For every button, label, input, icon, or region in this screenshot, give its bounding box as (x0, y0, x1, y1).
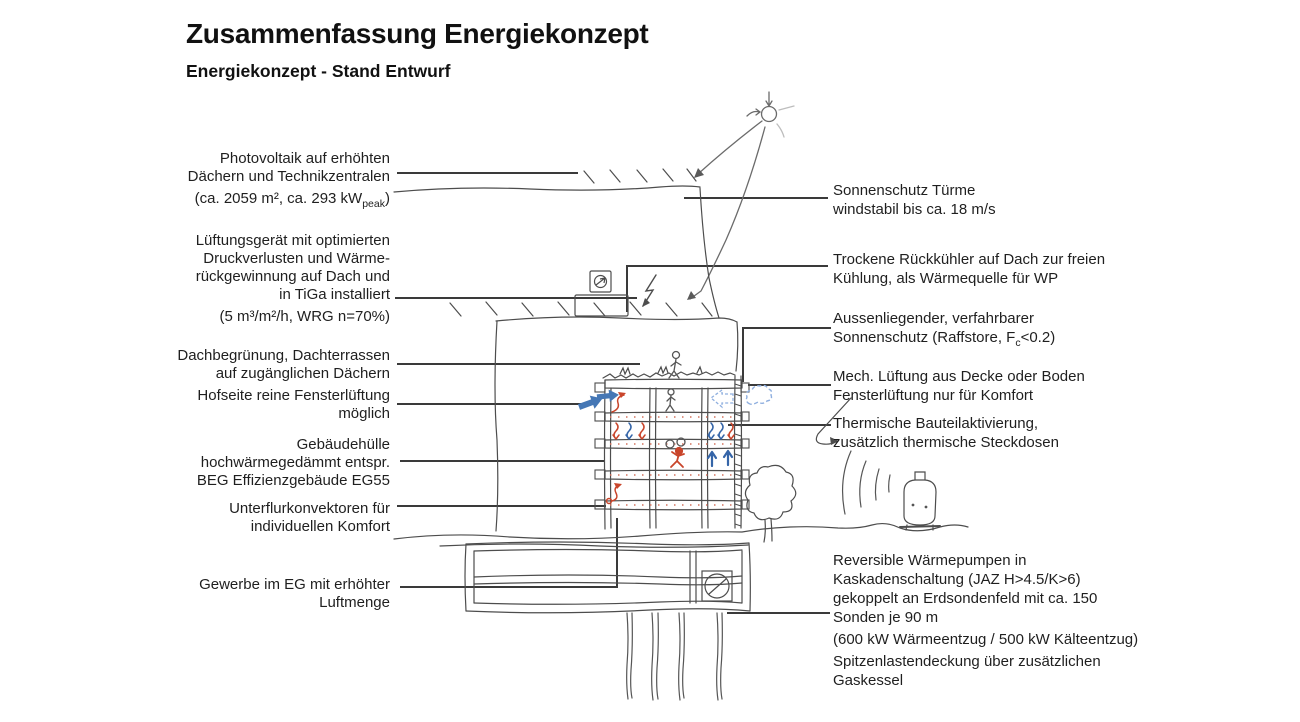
label-bauteilaktivierung: Thermische Bauteilaktivierung, zusätzlic… (833, 414, 1059, 452)
label-line: hochwärmegedämmt entspr. (197, 454, 390, 472)
lightning-icon (642, 275, 656, 307)
label-sonnenschutz-tuerme: Sonnenschutz Türme windstabil bis ca. 18… (833, 181, 996, 219)
label-line: (ca. 2059 m², ca. 293 kWpeak) (188, 190, 390, 213)
label-line: Fensterlüftung nur für Komfort (833, 386, 1085, 405)
grass-tufts (620, 367, 702, 374)
wind-cloud-icon (746, 385, 771, 404)
label-line: (5 m³/m²/h, WRG n=70%) (196, 308, 390, 326)
label-line: Gaskessel (833, 671, 1138, 690)
label-line: rückgewinnung auf Dach und (196, 268, 390, 286)
label-line: Hofseite reine Fensterlüftung (197, 387, 390, 405)
boiler-sketch (900, 472, 940, 530)
label-line: Photovoltaik auf erhöhten (188, 150, 390, 168)
tower-outline (394, 169, 719, 318)
podium-outline (450, 302, 738, 531)
window-vent-arrow (711, 390, 733, 407)
label-line: Reversible Wärmepumpen in (833, 551, 1138, 570)
label-line: Unterflurkonvektoren für (229, 500, 390, 518)
earth-probes (627, 613, 723, 700)
label-line: windstabil bis ca. 18 m/s (833, 200, 996, 219)
label-line: Luftmenge (199, 594, 390, 612)
cool-arrows-blue (626, 423, 732, 466)
label-line: Dächern und Technikzentralen (188, 168, 390, 186)
fan-icon (595, 276, 607, 288)
label-dachbegruenung: Dachbegrünung, Dachterrassen auf zugängl… (177, 347, 390, 383)
label-line: Aussenliegender, verfahrbarer (833, 309, 1055, 328)
label-line: in TiGa installiert (196, 286, 390, 304)
label-line: auf zugänglichen Dächern (177, 365, 390, 383)
label-line: Druckverlusten und Wärme- (196, 250, 390, 268)
leader-rueckkuehler (627, 266, 828, 312)
label-line: Dachbegrünung, Dachterrassen (177, 347, 390, 365)
label-gebaeudehuelle: Gebäudehülle hochwärmegedämmt entspr. BE… (197, 436, 390, 490)
label-rueckkuehler: Trockene Rückkühler auf Dach zur freien … (833, 250, 1105, 288)
label-line: (600 kW Wärmeentzug / 500 kW Kälteentzug… (833, 630, 1138, 649)
label-line: möglich (197, 405, 390, 423)
label-line: BEG Effizienzgebäude EG55 (197, 472, 390, 490)
label-waermepumpen: Reversible Wärmepumpen in Kaskadenschalt… (833, 551, 1138, 690)
label-line: Thermische Bauteilaktivierung, (833, 414, 1059, 433)
label-line: individuellen Komfort (229, 518, 390, 536)
label-line: Spitzenlastendeckung über zusätzlichen (833, 652, 1138, 671)
label-line: Trockene Rückkühler auf Dach zur freien (833, 250, 1105, 269)
heat-pump-icon (702, 571, 732, 601)
sun-ray-to-pv (698, 121, 762, 174)
label-line: gekoppelt an Erdsondenfeld mit ca. 150 (833, 589, 1138, 608)
label-line: Mech. Lüftung aus Decke oder Boden (833, 367, 1085, 386)
label-photovoltaik: Photovoltaik auf erhöhten Dächern und Te… (188, 150, 390, 213)
person-red-figure (671, 448, 684, 467)
label-line: Sonnenschutz (Raffstore, Fc<0.2) (833, 328, 1055, 353)
sun-icon (687, 92, 794, 300)
pv-hatching-icon (584, 169, 696, 183)
label-lueftungsgeraet: Lüftungsgerät mit optimierten Druckverlu… (196, 232, 390, 326)
label-unterflurkonvektoren: Unterflurkonvektoren für individuellen K… (229, 500, 390, 536)
label-mech-lueftung: Mech. Lüftung aus Decke oder Boden Fenst… (833, 367, 1085, 405)
label-line: Sonden je 90 m (833, 608, 1138, 627)
label-line: Gewerbe im EG mit erhöhter (199, 576, 390, 594)
label-line: Kühlung, als Wärmequelle für WP (833, 269, 1105, 288)
label-line: Kaskadenschaltung (JAZ H>4.5/K>6) (833, 570, 1138, 589)
roof-hatching-icon (450, 302, 712, 316)
energy-concept-page: Zusammenfassung Energiekonzept Energieko… (0, 0, 1300, 722)
person-in-room (666, 389, 675, 411)
label-gewerbe: Gewerbe im EG mit erhöhter Luftmenge (199, 576, 390, 612)
leader-aussenliegender (743, 328, 831, 382)
ventilation-unit-sketch (575, 271, 628, 316)
label-line: Sonnenschutz Türme (833, 181, 996, 200)
label-line: Gebäudehülle (197, 436, 390, 454)
label-aussenliegender-sonnenschutz: Aussenliegender, verfahrbarer Sonnenschu… (833, 309, 1055, 353)
sound-arcs (843, 451, 890, 514)
person-figures (666, 352, 685, 449)
label-hofseite: Hofseite reine Fensterlüftung möglich (197, 387, 390, 423)
basement-sketch (465, 542, 750, 613)
leader-gewerbe (400, 518, 617, 587)
label-line: zusätzlich thermische Steckdosen (833, 433, 1059, 452)
label-line: Lüftungsgerät mit optimierten (196, 232, 390, 250)
